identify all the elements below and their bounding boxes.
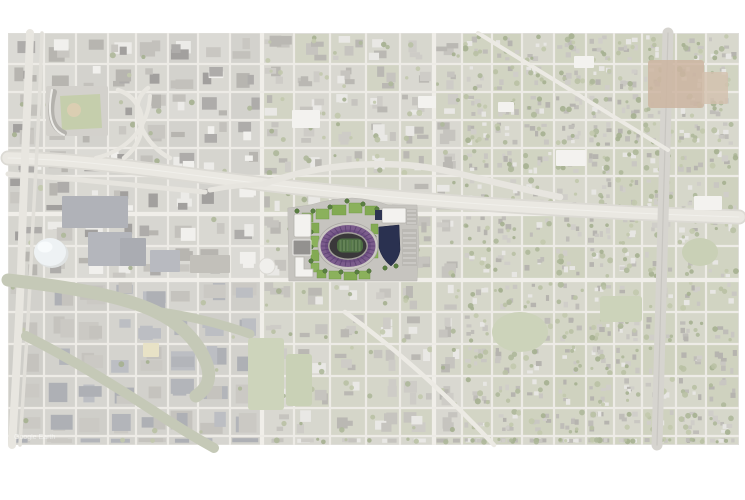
watermark-text: Google Earth bbox=[14, 434, 55, 441]
satellite-figure: Google Earth bbox=[0, 0, 745, 500]
page-canvas: Google Earth bbox=[0, 0, 745, 500]
aerial-map: Google Earth bbox=[0, 0, 745, 500]
watermark: Google Earth bbox=[14, 434, 55, 441]
stadium-site-plan bbox=[288, 198, 419, 281]
